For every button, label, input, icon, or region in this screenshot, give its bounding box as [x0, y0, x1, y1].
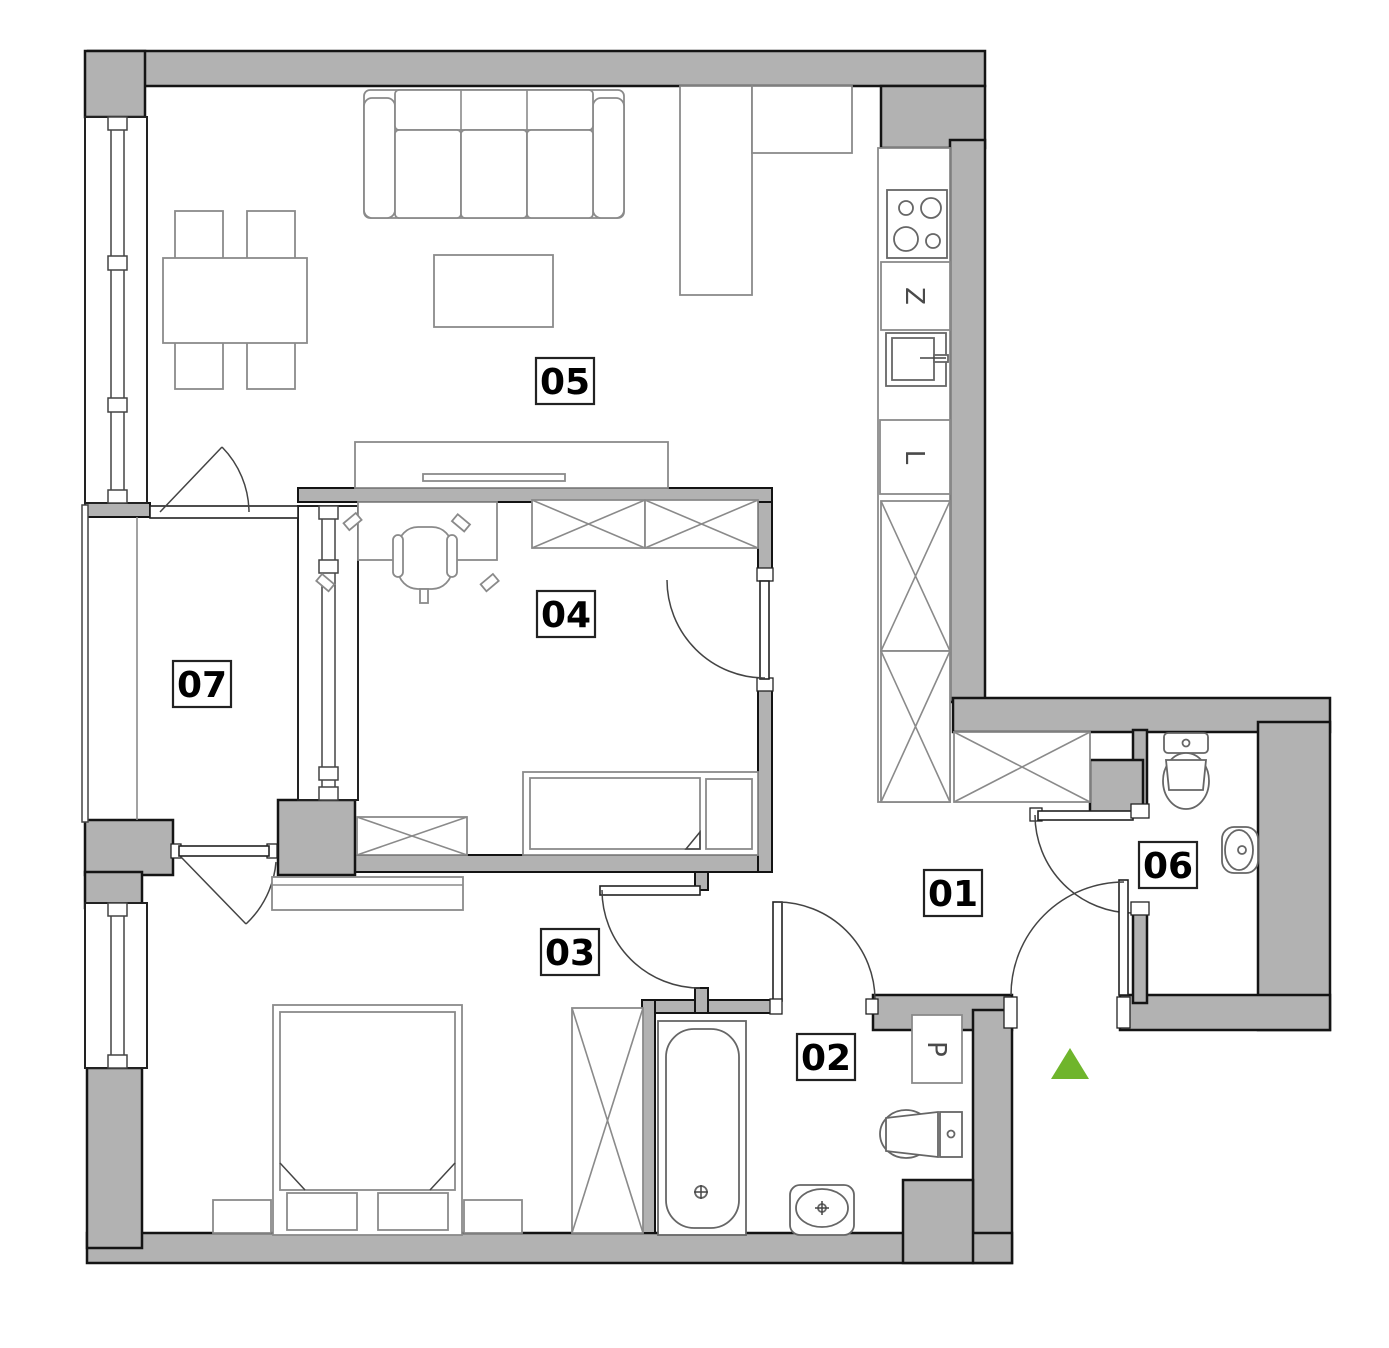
- door-balcony-bedroom03: [171, 844, 277, 924]
- wall-right-outer: [950, 140, 985, 702]
- stove-icon: [887, 190, 947, 258]
- tall-cabinet: [680, 86, 752, 295]
- hall-wardrobe-icon: [954, 732, 1090, 802]
- window-bedroom-03: [85, 903, 147, 1068]
- door-entrance: [1004, 880, 1130, 1028]
- wall-06-bottom: [1120, 995, 1330, 1030]
- wall-southeast-outer: [973, 1010, 1012, 1263]
- wall-bath-shaft: [903, 1180, 973, 1263]
- wall-06-left-lower-stub: [1133, 908, 1147, 1003]
- door-room04: [667, 568, 773, 691]
- room-label-01: 01: [924, 870, 982, 916]
- dishwasher-unit: Z: [881, 262, 950, 330]
- entrance-marker-icon: [1051, 1048, 1089, 1079]
- wall-balcony-top-stub: [85, 503, 150, 517]
- washing-machine: P: [912, 1015, 962, 1083]
- sofa: [364, 90, 624, 218]
- chest-icon: [357, 817, 467, 855]
- dining-table: [163, 258, 307, 343]
- double-bed: [273, 1005, 462, 1235]
- room04-furniture: [316, 500, 758, 855]
- floor-plan: Z L: [0, 0, 1389, 1348]
- sink-icon: [790, 1185, 854, 1235]
- living-room-furniture: [163, 86, 852, 488]
- wall-bath-left: [642, 1000, 655, 1233]
- sink-icon: [1222, 827, 1258, 873]
- svg-text:02: 02: [801, 1038, 851, 1079]
- fridge-unit: L: [880, 420, 950, 494]
- bathtub-icon: [658, 1021, 746, 1235]
- floor-plan-page: Z L: [0, 0, 1389, 1348]
- wall-bottom: [87, 1233, 1012, 1263]
- wardrobe-icon: [532, 500, 758, 548]
- room-label-03: 03: [541, 929, 599, 975]
- balcony-edge-line: [82, 505, 88, 822]
- wall-04-right-lower: [758, 680, 772, 872]
- dining-set: [163, 211, 307, 389]
- svg-text:04: 04: [541, 595, 591, 636]
- upper-cabinet: [752, 86, 852, 153]
- fridge-label: L: [899, 450, 929, 465]
- wall-balcony-bottom-left: [85, 820, 173, 875]
- pillow: [287, 1193, 357, 1230]
- wardrobe-icon: [572, 1008, 643, 1233]
- svg-text:03: 03: [545, 933, 595, 974]
- tv: [423, 474, 565, 481]
- wall-balcony-bottom-right: [278, 800, 355, 875]
- wall-top-left-corner: [85, 51, 145, 117]
- window-balcony-04: [298, 506, 358, 800]
- single-bed: [523, 772, 758, 855]
- room-label-06: 06: [1139, 842, 1197, 888]
- toilet-icon: [880, 1110, 962, 1158]
- room-label-04: 04: [537, 591, 595, 637]
- svg-text:06: 06: [1143, 846, 1193, 887]
- wall-corridor-jamb-bottom: [695, 988, 708, 1013]
- wall-top-right-block: [881, 86, 985, 148]
- room-label-02: 02: [797, 1034, 855, 1080]
- nightstand: [213, 1200, 271, 1233]
- coffee-table: [434, 255, 553, 327]
- room-label-05: 05: [536, 358, 594, 404]
- wall-04-bottom: [355, 855, 772, 872]
- room-label-07: 07: [173, 661, 231, 707]
- washing-machine-label: P: [921, 1041, 951, 1057]
- wall-left-03-lower: [87, 1068, 142, 1248]
- svg-text:01: 01: [928, 874, 978, 915]
- svg-text:05: 05: [540, 362, 590, 403]
- chair: [175, 211, 223, 264]
- door-kitchen: [1030, 808, 1133, 913]
- wall-top: [88, 51, 985, 86]
- pillow: [706, 779, 752, 849]
- chair: [247, 336, 295, 389]
- toilet-icon: [1163, 733, 1209, 809]
- chair: [247, 211, 295, 264]
- wall-bath-top: [642, 1000, 777, 1013]
- wall-06-right: [1258, 722, 1330, 1030]
- svg-text:07: 07: [177, 665, 227, 706]
- door-bathroom02: [770, 902, 878, 1014]
- window-living-room: [85, 117, 147, 503]
- kitchen-sink-icon: [886, 333, 948, 386]
- dishwasher-label: Z: [899, 287, 929, 305]
- pillow: [378, 1193, 448, 1230]
- nightstand: [464, 1200, 522, 1233]
- door-living-balcony: [150, 447, 298, 518]
- kitchen-tall-cabinet-icon: [881, 501, 950, 802]
- chair: [175, 336, 223, 389]
- tv-cabinet: [355, 442, 668, 488]
- door-bedroom03: [600, 886, 700, 988]
- console-table: [272, 877, 463, 910]
